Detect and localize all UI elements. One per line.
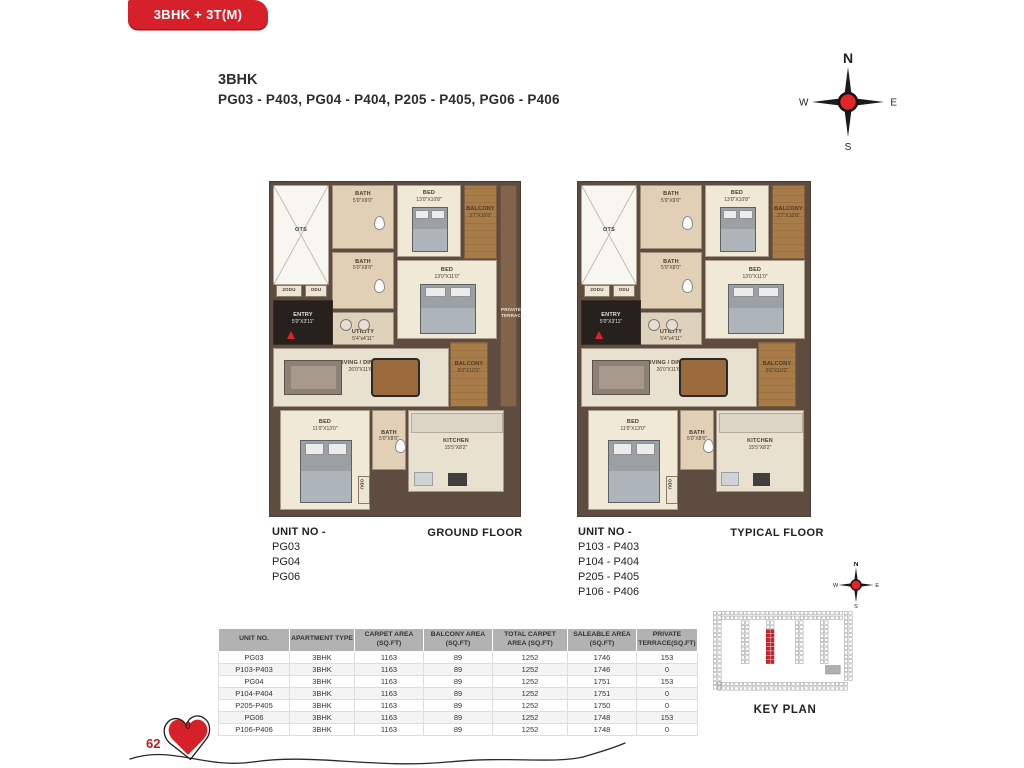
compass-rose: N S W E: [798, 52, 898, 152]
room-entry: ENTRY5'0"X3'11": [581, 300, 641, 345]
room-label: BALCONY3'7"X10'8": [465, 206, 496, 219]
table-cell: 153: [637, 711, 698, 723]
room-odu3: ODU: [358, 476, 370, 504]
column-header: PRIVATE TERRACE(SQ.FT): [637, 629, 698, 652]
room-bed3: BED11'0"X13'0": [280, 410, 370, 510]
room-ots: OTS: [581, 185, 637, 285]
room-label: BALCONY5'0"X10'2": [451, 361, 487, 374]
room-bed2: BED13'0"X11'0": [705, 260, 805, 339]
counter-strip: [719, 413, 804, 433]
typical-floor-plan: OTSBATH5'0"X9'0"BED13'0"X10'8"BALCONY3'7…: [578, 182, 810, 516]
table-cell: 0: [637, 687, 698, 699]
sofa-icon: [284, 360, 342, 395]
washing-machine-icon: [666, 319, 678, 331]
room-balcony2: BALCONY5'0"X10'2": [758, 342, 796, 407]
room-bed1: BED13'0"X10'8": [705, 185, 769, 257]
table-cell: 3BHK: [290, 651, 355, 663]
table-cell: 1750: [568, 699, 637, 711]
table-cell: 1252: [493, 675, 568, 687]
room-living: LIVING / DINING26'0"X11'6": [273, 348, 449, 407]
table-cell: PG03: [219, 651, 290, 663]
room-label: PRIVATE TERRACE: [501, 307, 516, 318]
table-cell: 0: [637, 699, 698, 711]
typical-floor-unit-list: UNIT NO - P103 - P403P104 - P404P205 - P…: [578, 526, 639, 600]
washing-machine-icon: [358, 319, 370, 331]
table-cell: 1163: [355, 723, 424, 735]
room-balcony1: BALCONY3'7"X10'8": [772, 185, 805, 259]
bed-icon: [412, 207, 449, 252]
table-row: PG063BHK11638912521748153: [219, 711, 698, 723]
room-label: BED11'0"X13'0": [281, 419, 369, 432]
unit-list-heading: UNIT NO -: [578, 526, 639, 538]
table-cell: 1163: [355, 711, 424, 723]
entry-arrow-icon: [595, 331, 603, 339]
counter-strip: [411, 413, 503, 433]
brochure-page: 3BHK + 3T(M) 3BHK PG03 - P403, PG04 - P4…: [0, 0, 1024, 768]
room-label: UTILITY5'4"x4'11": [641, 329, 701, 342]
room-label: ENTRY5'0"X3'11": [582, 312, 640, 325]
room-balcony2: BALCONY5'0"X10'2": [450, 342, 488, 407]
room-label: BALCONY3'7"X10'8": [773, 206, 804, 219]
column-header: BALCONY AREA (SQ.FT): [424, 629, 493, 652]
room-label: ODU: [359, 479, 369, 490]
column-header: SALEABLE AREA (SQ.FT): [568, 629, 637, 652]
room-label: BED13'0"X11'0": [398, 267, 496, 280]
bed-icon: [608, 440, 659, 503]
table-row: PG033BHK11638912521746153: [219, 651, 698, 663]
table-cell: 1748: [568, 711, 637, 723]
table-cell: 89: [424, 663, 493, 675]
room-terrace: PRIVATE TERRACE: [500, 185, 517, 407]
area-table-body: PG033BHK11638912521746153P103-P4033BHK11…: [219, 651, 698, 735]
room-label: UTILITY5'4"x4'11": [333, 329, 393, 342]
room-odu3: ODU: [666, 476, 678, 504]
table-cell: PG06: [219, 711, 290, 723]
washing-machine-icon: [648, 319, 660, 331]
room-label: BATH5'0"X8'0": [641, 259, 701, 272]
area-table-header-row: UNIT NO.APARTMENT TYPECARPET AREA (SQ.FT…: [219, 629, 698, 652]
toilet-icon: [682, 279, 693, 293]
table-cell: 0: [637, 723, 698, 735]
sink-icon: [414, 472, 433, 486]
ground-floor-plan: OTSBATH5'0"X9'0"BED13'0"X10'8"BALCONY3'7…: [270, 182, 520, 516]
dining-table-icon: [679, 358, 728, 397]
toilet-icon: [703, 439, 714, 453]
room-label: ODU: [667, 479, 677, 490]
room-odu1: 2ODU: [276, 285, 302, 297]
toilet-icon: [374, 216, 385, 230]
table-row: P106-P4063BHK116389125217480: [219, 723, 698, 735]
title-block: 3BHK PG03 - P403, PG04 - P404, P205 - P4…: [218, 72, 560, 107]
room-label: ODU: [614, 287, 634, 293]
stove-icon: [448, 473, 467, 487]
table-cell: 1163: [355, 687, 424, 699]
table-cell: 1163: [355, 663, 424, 675]
table-cell: 3BHK: [290, 663, 355, 675]
area-statement-table: UNIT NO.APARTMENT TYPECARPET AREA (SQ.FT…: [218, 628, 698, 736]
ground-floor-unit-list: UNIT NO - PG03PG04PG06: [272, 526, 326, 585]
compass-east-label: E: [890, 98, 897, 109]
sofa-icon: [592, 360, 650, 395]
key-plan-diagram: [707, 604, 863, 696]
room-label: BED11'0"X13'0": [589, 419, 677, 432]
bed-icon: [720, 207, 757, 252]
page-title: 3BHK: [218, 72, 560, 88]
table-cell: 1252: [493, 711, 568, 723]
ground-floor-caption: GROUND FLOOR: [405, 527, 545, 539]
table-cell: P103-P403: [219, 663, 290, 675]
table-cell: 153: [637, 651, 698, 663]
column-header: CARPET AREA (SQ.FT): [355, 629, 424, 652]
table-cell: 1163: [355, 651, 424, 663]
unit-number: PG04: [272, 555, 326, 570]
table-row: P205-P4053BHK116389125217500: [219, 699, 698, 711]
room-kitchen: KITCHEN15'5"X8'2": [408, 410, 504, 492]
room-label: OTS: [582, 227, 636, 234]
room-label: 2ODU: [585, 287, 609, 293]
table-cell: 89: [424, 699, 493, 711]
room-bath3: BATH5'0"X8'6": [372, 410, 406, 470]
table-row: P104-P4043BHK116389125217510: [219, 687, 698, 699]
bed-icon: [728, 284, 785, 334]
room-bed2: BED13'0"X11'0": [397, 260, 497, 339]
unit-type-badge: 3BHK + 3T(M): [128, 0, 268, 29]
room-kitchen: KITCHEN15'5"X8'2": [716, 410, 804, 492]
toilet-icon: [395, 439, 406, 453]
table-cell: 3BHK: [290, 723, 355, 735]
unit-number: P104 - P404: [578, 555, 639, 570]
table-cell: 1751: [568, 675, 637, 687]
unit-range-subtitle: PG03 - P403, PG04 - P404, P205 - P405, P…: [218, 92, 560, 107]
room-bath3: BATH5'0"X8'6": [680, 410, 714, 470]
dining-table-icon: [371, 358, 420, 397]
column-header: APARTMENT TYPE: [290, 629, 355, 652]
unit-list-items: P103 - P403P104 - P404P205 - P405P106 - …: [578, 540, 639, 600]
sink-icon: [721, 472, 738, 486]
unit-number: P103 - P403: [578, 540, 639, 555]
table-cell: P205-P405: [219, 699, 290, 711]
washing-machine-icon: [340, 319, 352, 331]
table-cell: 89: [424, 711, 493, 723]
table-cell: 153: [637, 675, 698, 687]
room-label: ENTRY5'0"X3'11": [274, 312, 332, 325]
room-entry: ENTRY5'0"X3'11": [273, 300, 333, 345]
toilet-icon: [682, 216, 693, 230]
table-cell: 89: [424, 651, 493, 663]
table-cell: 3BHK: [290, 699, 355, 711]
bed-icon: [420, 284, 477, 334]
unit-number: P205 - P405: [578, 570, 639, 585]
table-cell: 1748: [568, 723, 637, 735]
table-cell: P106-P406: [219, 723, 290, 735]
room-bed1: BED13'0"X10'8": [397, 185, 461, 257]
room-bath2: BATH5'0"X8'0": [640, 252, 702, 309]
column-header: TOTAL CARPET AREA (SQ.FT): [493, 629, 568, 652]
table-cell: 1252: [493, 663, 568, 675]
compass-north-label: N: [843, 52, 853, 66]
room-label: BED13'0"X10'8": [398, 190, 460, 203]
heart-logo-icon: [160, 714, 216, 766]
table-cell: 0: [637, 663, 698, 675]
room-utility: UTILITY5'4"x4'11": [332, 312, 394, 345]
unit-list-heading: UNIT NO -: [272, 526, 326, 538]
table-cell: PG04: [219, 675, 290, 687]
stove-icon: [753, 473, 770, 487]
table-cell: 1252: [493, 651, 568, 663]
compass-west-label: W: [833, 583, 839, 589]
room-label: 2ODU: [277, 287, 301, 293]
table-cell: 3BHK: [290, 711, 355, 723]
table-cell: 1163: [355, 699, 424, 711]
table-row: P103-P4033BHK116389125217460: [219, 663, 698, 675]
bed-icon: [300, 440, 351, 503]
room-label: KITCHEN15'5"X8'2": [409, 438, 503, 451]
room-label: BATH5'0"X9'0": [333, 191, 393, 204]
room-odu2: ODU: [305, 285, 327, 297]
table-cell: 89: [424, 687, 493, 699]
compass-south-label: S: [845, 142, 852, 152]
unit-list-items: PG03PG04PG06: [272, 540, 326, 585]
table-cell: 3BHK: [290, 675, 355, 687]
table-cell: 3BHK: [290, 687, 355, 699]
room-bath1: BATH5'0"X9'0": [640, 185, 702, 249]
room-label: BED13'0"X10'8": [706, 190, 768, 203]
table-cell: 89: [424, 723, 493, 735]
page-number: 62: [146, 736, 160, 751]
room-label: KITCHEN15'5"X8'2": [717, 438, 803, 451]
room-label: OTS: [274, 227, 328, 234]
unit-number: P106 - P406: [578, 585, 639, 600]
table-cell: 1746: [568, 663, 637, 675]
room-bath1: BATH5'0"X9'0": [332, 185, 394, 249]
table-cell: 1252: [493, 699, 568, 711]
room-odu2: ODU: [613, 285, 635, 297]
typical-floor-caption: TYPICAL FLOOR: [707, 527, 847, 539]
table-row: PG043BHK11638912521751153: [219, 675, 698, 687]
table-cell: 1252: [493, 723, 568, 735]
room-utility: UTILITY5'4"x4'11": [640, 312, 702, 345]
room-bath2: BATH5'0"X8'0": [332, 252, 394, 309]
unit-number: PG06: [272, 570, 326, 585]
table-cell: 1746: [568, 651, 637, 663]
room-label: BATH5'0"X8'0": [333, 259, 393, 272]
keyplan-compass-rose: N S W E: [833, 562, 879, 608]
room-odu1: 2ODU: [584, 285, 610, 297]
room-balcony1: BALCONY3'7"X10'8": [464, 185, 497, 259]
room-bed3: BED11'0"X13'0": [588, 410, 678, 510]
room-ots: OTS: [273, 185, 329, 285]
compass-west-label: W: [799, 98, 809, 109]
entry-arrow-icon: [287, 331, 295, 339]
table-cell: 89: [424, 675, 493, 687]
key-plan-label: KEY PLAN: [707, 704, 863, 716]
room-label: BALCONY5'0"X10'2": [759, 361, 795, 374]
unit-number: PG03: [272, 540, 326, 555]
table-cell: 1751: [568, 687, 637, 699]
room-label: ODU: [306, 287, 326, 293]
key-plan: KEY PLAN: [707, 604, 863, 716]
compass-north-label: N: [854, 562, 859, 568]
room-label: BATH5'0"X9'0": [641, 191, 701, 204]
table-cell: P104-P404: [219, 687, 290, 699]
table-cell: 1252: [493, 687, 568, 699]
toilet-icon: [374, 279, 385, 293]
compass-east-label: E: [875, 583, 879, 589]
column-header: UNIT NO.: [219, 629, 290, 652]
room-living: LIVING / DINING26'0"X11'6": [581, 348, 757, 407]
room-label: BED13'0"X11'0": [706, 267, 804, 280]
table-cell: 1163: [355, 675, 424, 687]
